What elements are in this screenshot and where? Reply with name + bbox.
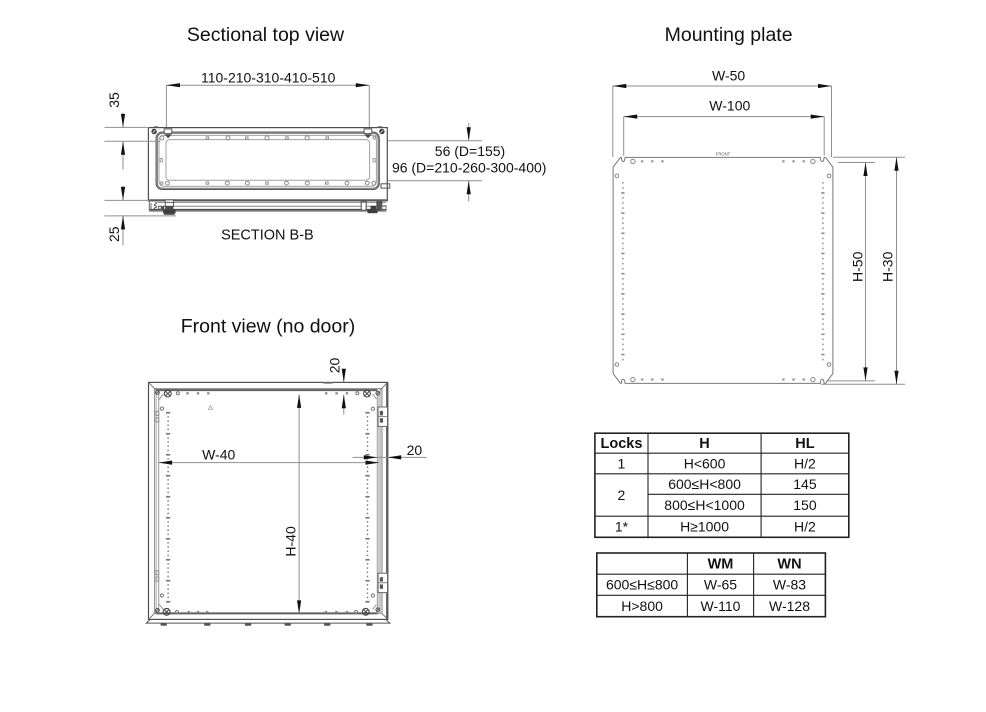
svg-text:H: H: [699, 436, 709, 452]
svg-text:1: 1: [618, 456, 626, 472]
svg-text:25: 25: [106, 226, 122, 242]
svg-text:WM: WM: [708, 557, 734, 573]
svg-text:W-128: W-128: [769, 598, 810, 614]
svg-text:Mounting plate: Mounting plate: [665, 24, 793, 46]
svg-text:FRONT: FRONT: [716, 151, 731, 156]
svg-text:1*: 1*: [615, 519, 629, 535]
svg-text:20: 20: [326, 358, 342, 374]
svg-text:W-50: W-50: [712, 68, 745, 84]
svg-text:H-50: H-50: [849, 251, 865, 282]
svg-text:20: 20: [407, 442, 423, 458]
svg-text:800≤H<1000: 800≤H<1000: [664, 497, 745, 513]
svg-text:SECTION B-B: SECTION B-B: [221, 228, 314, 244]
svg-text:150: 150: [793, 497, 817, 513]
svg-text:2: 2: [618, 487, 626, 503]
svg-text:WN: WN: [777, 557, 801, 573]
svg-text:35: 35: [106, 92, 122, 108]
svg-text:W-40: W-40: [202, 447, 235, 463]
svg-text:H-30: H-30: [880, 251, 896, 282]
svg-text:H/2: H/2: [794, 519, 816, 535]
svg-text:Locks: Locks: [600, 436, 642, 452]
svg-text:H-40: H-40: [283, 526, 299, 557]
svg-text:145: 145: [793, 476, 817, 492]
svg-text:W-83: W-83: [773, 577, 806, 593]
svg-text:H≥1000: H≥1000: [680, 519, 729, 535]
svg-text:110-210-310-410-510: 110-210-310-410-510: [201, 69, 336, 85]
svg-text:W-65: W-65: [704, 577, 737, 593]
svg-text:Sectional top view: Sectional top view: [187, 24, 345, 46]
svg-text:H/2: H/2: [794, 456, 816, 472]
svg-text:H<600: H<600: [684, 456, 726, 472]
svg-text:H>800: H>800: [621, 598, 663, 614]
svg-text:96 (D=210-260-300-400): 96 (D=210-260-300-400): [392, 159, 547, 175]
svg-text:Front view (no door): Front view (no door): [181, 315, 355, 337]
svg-text:HL: HL: [795, 436, 814, 452]
svg-text:W-100: W-100: [709, 98, 750, 114]
svg-text:56 (D=155): 56 (D=155): [435, 143, 505, 159]
svg-text:600≤H≤800: 600≤H≤800: [606, 577, 678, 593]
svg-text:600≤H<800: 600≤H<800: [668, 476, 741, 492]
svg-text:W-110: W-110: [701, 598, 741, 614]
